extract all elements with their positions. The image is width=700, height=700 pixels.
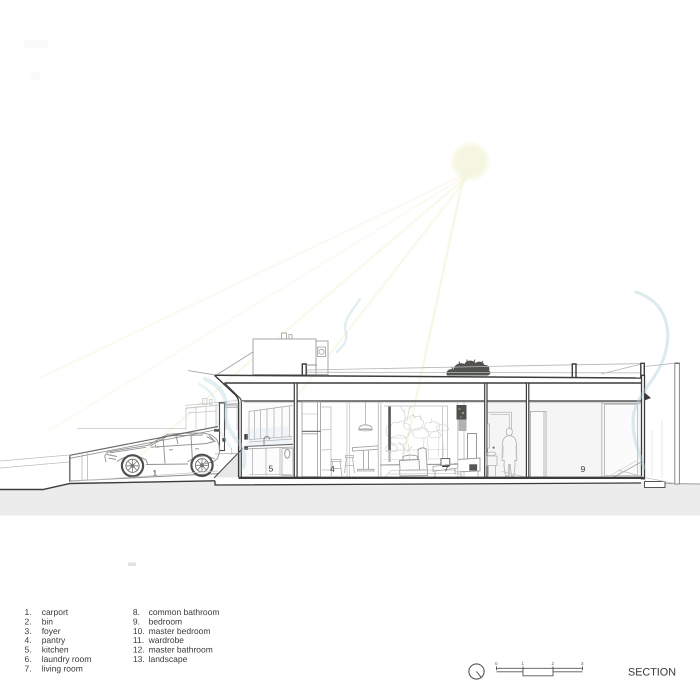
svg-text:SECTION: SECTION	[628, 667, 676, 679]
svg-text:living room: living room	[42, 663, 83, 673]
svg-text:13.: 13.	[133, 654, 145, 664]
svg-text:landscape: landscape	[149, 654, 188, 664]
svg-text:5: 5	[269, 464, 274, 474]
svg-text:7: 7	[444, 465, 449, 474]
svg-text:9: 9	[581, 464, 586, 474]
svg-text:4: 4	[330, 464, 335, 474]
svg-text:7.: 7.	[25, 663, 32, 673]
svg-text:1: 1	[153, 468, 158, 478]
